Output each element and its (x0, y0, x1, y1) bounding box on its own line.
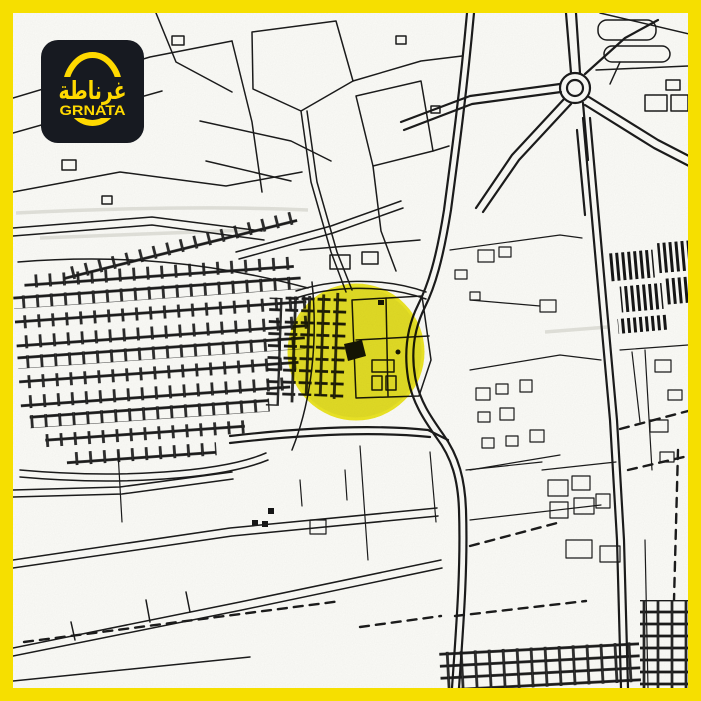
post-image: غرناطة GRNATA (0, 0, 701, 701)
location-highlight-circle (289, 285, 423, 419)
logo-latin-text: GRNATA (60, 102, 126, 118)
map-post-canvas: غرناطة GRNATA (0, 0, 701, 701)
grnata-logo: غرناطة GRNATA (41, 40, 144, 143)
